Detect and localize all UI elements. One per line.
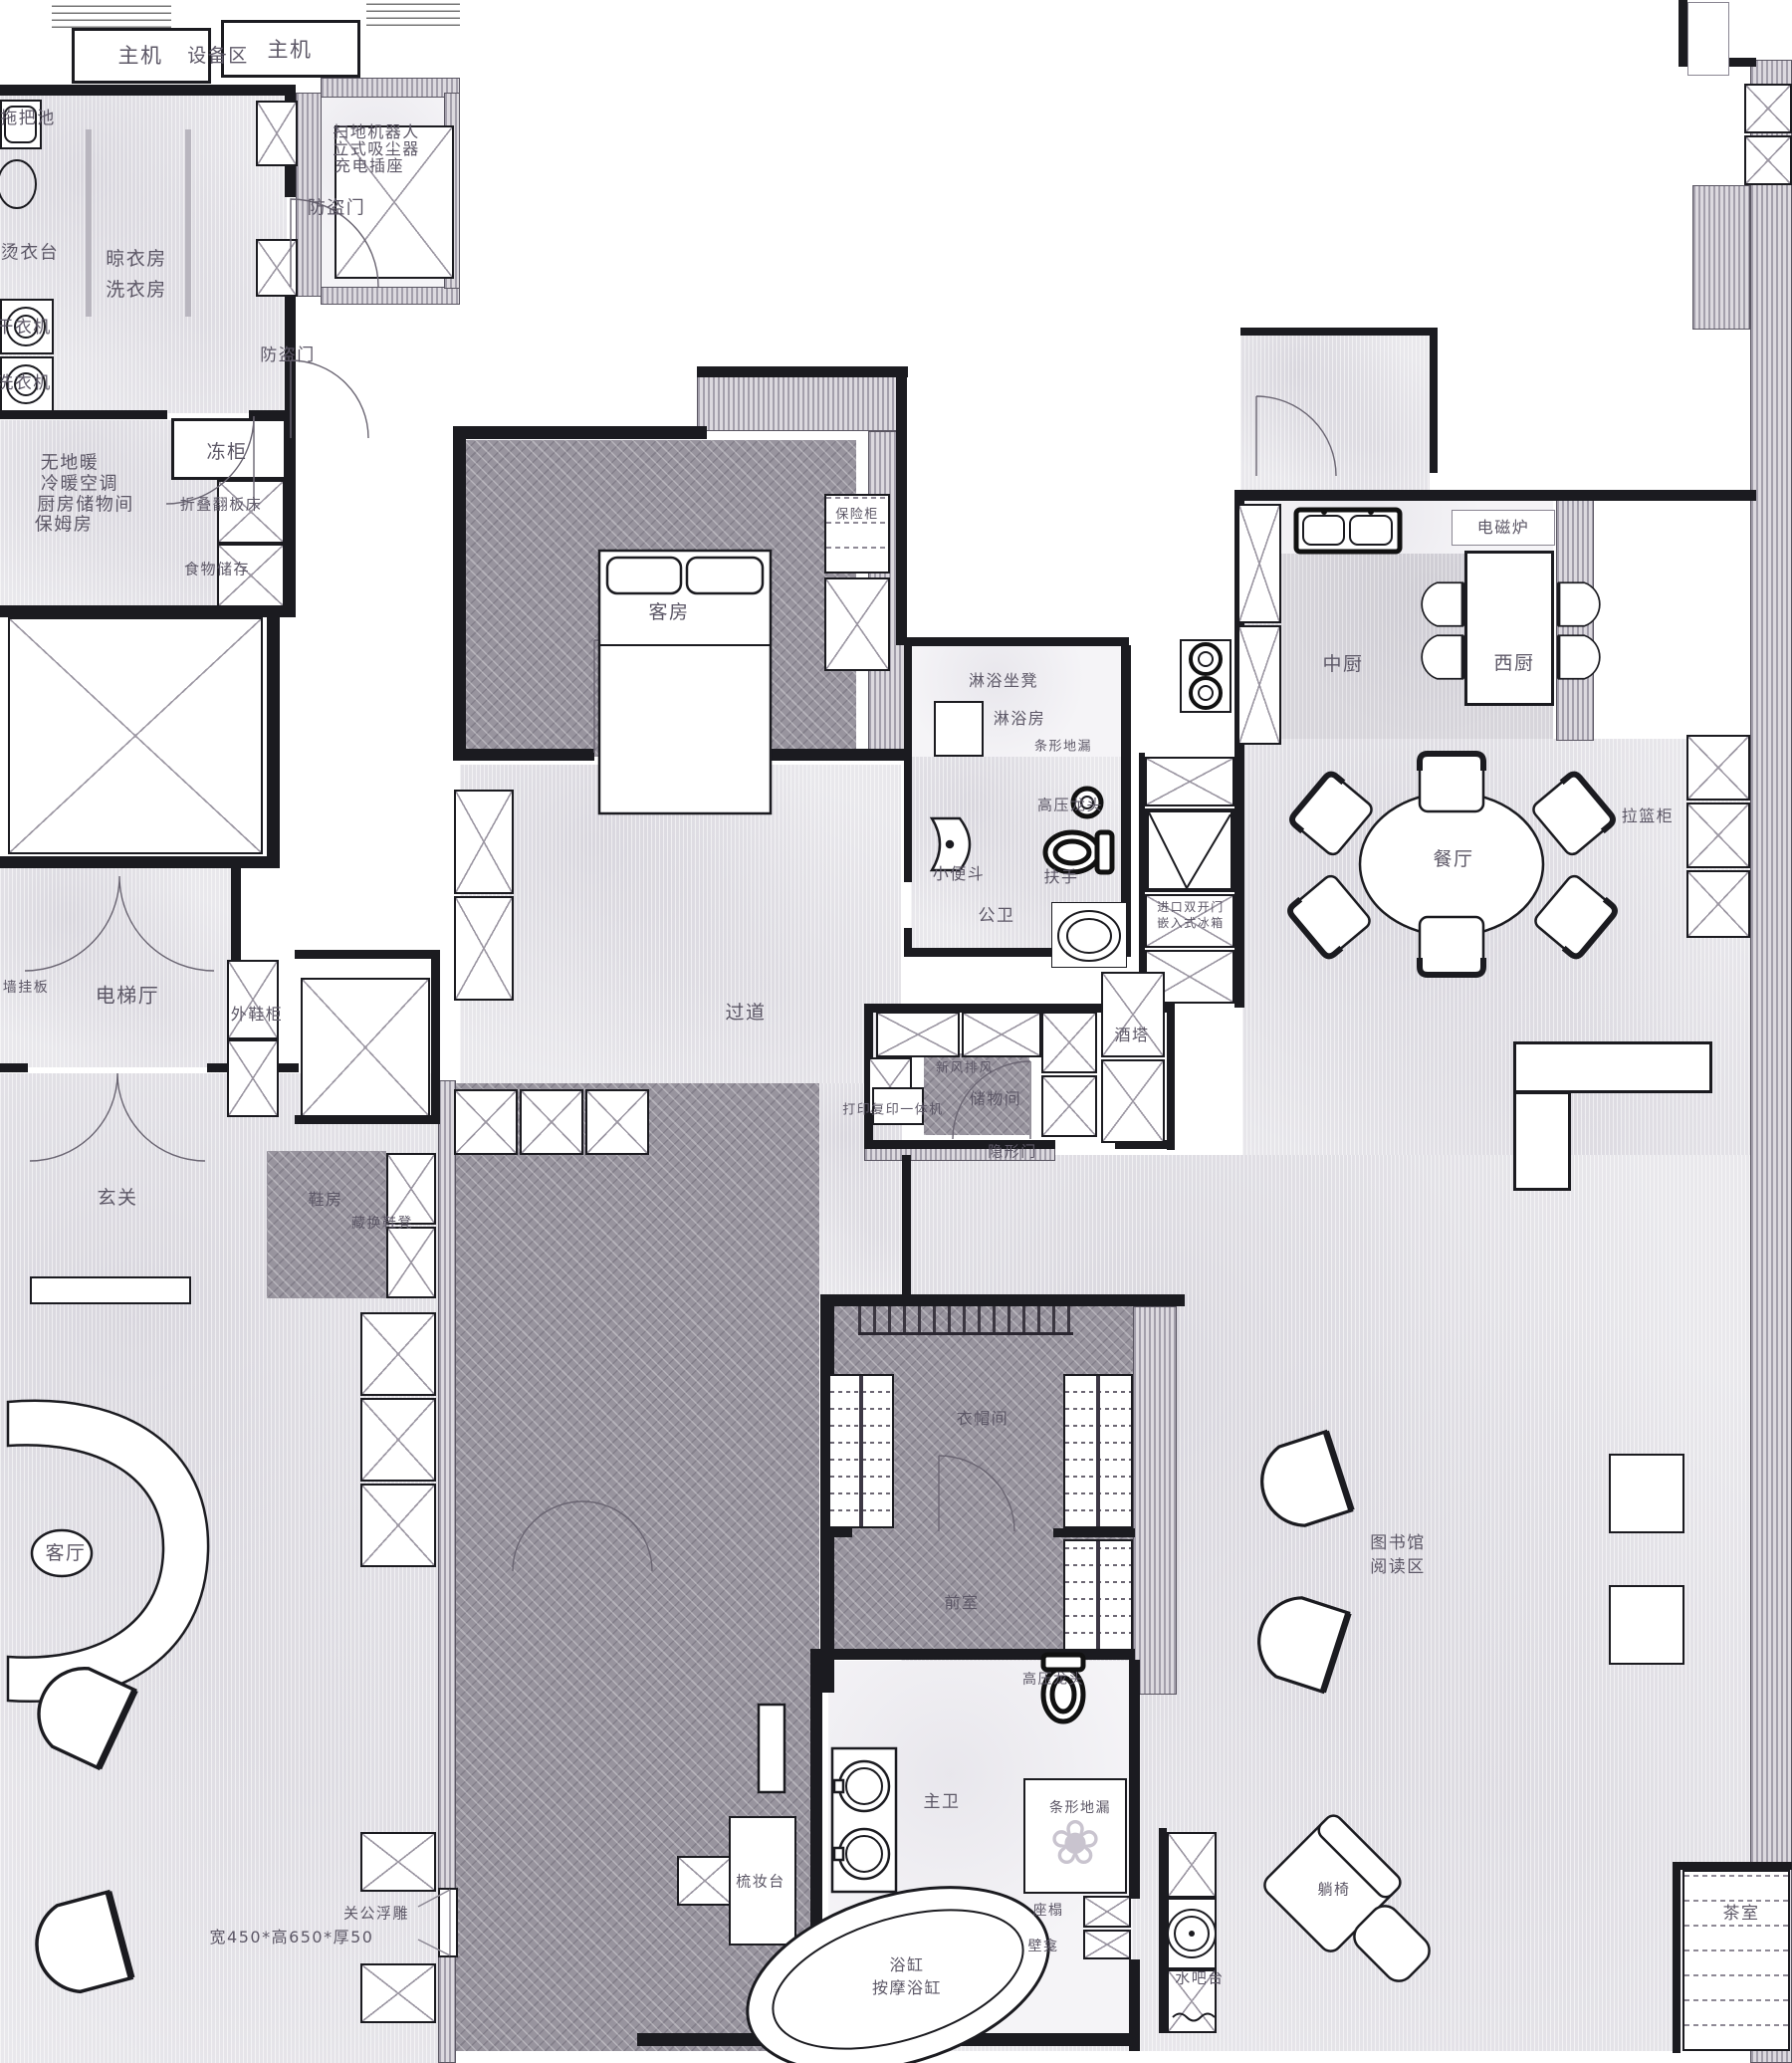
dining-chair (1532, 873, 1618, 959)
label-lounge-chair: 躺椅 (1317, 1881, 1350, 1898)
door-arc-bedroom (513, 1501, 652, 1571)
door-arcs (25, 199, 1336, 1571)
dining-chair (1289, 772, 1375, 857)
label-relief-size: 宽450*高650*厚50 (210, 1929, 374, 1947)
label-pullout-cabinet: 拉篮柜 (1622, 807, 1675, 825)
island-chair (1422, 635, 1462, 679)
label-master-bath: 主卫 (924, 1793, 961, 1813)
label-living-room: 客厅 (45, 1543, 86, 1565)
library-chair (1251, 1432, 1352, 1534)
relief-leader-lines (418, 1890, 450, 1955)
master-toilet (1043, 1655, 1083, 1721)
label-equipment-area: 设备区 (187, 46, 249, 68)
label-guangong-relief: 关公浮雕 (343, 1905, 409, 1922)
master-vanity (832, 1748, 896, 1892)
label-reading-area: 阅读区 (1370, 1558, 1426, 1578)
label-guest-bath: 公卫 (979, 907, 1015, 927)
label-drying-room: 晾衣房 (106, 249, 167, 271)
urinal-icon (932, 818, 970, 870)
guest-bed (599, 551, 771, 813)
fridge-door-lines (1149, 812, 1231, 888)
label-wall-panel: 墙挂板 (3, 980, 50, 996)
kitchen-sink (1296, 509, 1400, 552)
vanity-mirror (759, 1705, 784, 1792)
label-foyer: 玄关 (97, 1188, 137, 1210)
label-folding-bed: 折叠翻板床 (180, 496, 263, 513)
stove-burners (1191, 644, 1221, 708)
library-chair (1248, 1589, 1349, 1692)
label-printer: 打印复印一体机 (842, 1104, 944, 1119)
label-hidden-door: 隐形门 (988, 1143, 1037, 1160)
floor-plan-canvas: ❀ 主机设备区主机拖把池烫衣台晾衣房洗衣房防盗门扫地机器人立式吸尘器充电插座干衣… (0, 0, 1792, 2063)
label-water-bar: 水吧台 (1175, 1969, 1225, 1986)
hanging-rod (185, 129, 191, 317)
label-dryer: 干衣机 (0, 319, 52, 339)
label-massage-tub: 按摩浴缸 (872, 1979, 942, 1997)
label-western-kitchen: 西厨 (1493, 653, 1534, 675)
label-kitchen-storage: 厨房储物间 (37, 496, 134, 517)
label-wine-tower: 酒塔 (1114, 1027, 1149, 1044)
door-arc-cloakroom (939, 1456, 1014, 1531)
label-bathtub: 浴缸 (889, 1956, 924, 1974)
label-host-machine-1: 主机 (118, 44, 163, 68)
label-hp-faucet-2: 高压龙头 (1022, 1672, 1084, 1688)
label-shower-seat: 淋浴坐凳 (969, 672, 1038, 690)
drain-flower-icon: ❀ (1049, 1806, 1101, 1879)
island-chair (1422, 582, 1462, 626)
hanging-rod (86, 129, 92, 317)
label-hidden-shoe-bench: 藏换鞋凳 (351, 1216, 413, 1232)
label-storage-room: 储物间 (970, 1090, 1022, 1108)
label-nanny-room: 保姆房 (35, 516, 94, 537)
label-dressing-table: 梳妆台 (736, 1873, 785, 1890)
label-library: 图书馆 (1370, 1534, 1426, 1554)
label-host-machine-2: 主机 (268, 38, 313, 62)
label-shoe-room: 鞋房 (308, 1191, 342, 1209)
door-arc-foyer (30, 1073, 205, 1161)
label-niche: 壁龛 (1028, 1939, 1059, 1954)
label-chinese-kitchen: 中厨 (1322, 654, 1363, 676)
label-washer: 洗衣机 (0, 374, 52, 394)
island-chair (1559, 635, 1600, 679)
water-bar-sink-icon (1168, 1910, 1216, 2021)
label-linear-drain-2: 条形地漏 (1049, 1800, 1111, 1816)
dining-chair (1420, 754, 1483, 811)
label-security-door-1: 防盗门 (308, 199, 366, 220)
label-corridor: 过道 (725, 1003, 766, 1025)
label-freezer: 冻柜 (206, 442, 247, 464)
label-outer-shoe-cabinet: 外鞋柜 (231, 1006, 284, 1024)
label-fridge-line-1: 进口双开门 (1157, 901, 1225, 915)
label-mop-pool: 拖把池 (0, 110, 56, 129)
label-linear-drain-1: 条形地漏 (1034, 741, 1092, 756)
label-laundry-room: 洗衣房 (106, 280, 167, 302)
furniture-layer: ❀ (0, 0, 1792, 2063)
dining-chair (1287, 873, 1373, 959)
door-arc-vestibule (1256, 396, 1336, 476)
label-safe-box: 保险柜 (835, 509, 879, 524)
label-cloakroom: 衣帽间 (957, 1410, 1009, 1428)
label-handrail: 扶手 (1043, 868, 1078, 886)
label-charging-socket: 充电插座 (335, 157, 404, 175)
door-arc-elevator-hall (25, 876, 214, 971)
label-anteroom: 前室 (944, 1594, 979, 1612)
label-bench-seat: 座榻 (1033, 1903, 1064, 1919)
label-food-storage: 食物储存 (184, 561, 250, 577)
label-security-door-2: 防盗门 (260, 346, 316, 366)
island-chair (1559, 582, 1600, 626)
dining-chair (1530, 772, 1616, 857)
label-dining-room: 餐厅 (1433, 849, 1473, 871)
label-no-floor-heating: 无地暖 (41, 454, 100, 475)
label-shower-room: 淋浴房 (994, 710, 1046, 728)
label-tea-room: 茶室 (1723, 1905, 1760, 1925)
label-fridge-line-2: 嵌入式冰箱 (1157, 917, 1225, 931)
door-arc-security-2 (291, 360, 368, 438)
label-elevator-hall: 电梯厅 (96, 985, 160, 1008)
dining-chair (1420, 917, 1483, 975)
label-hp-faucet-1: 高压龙头 (1037, 797, 1103, 813)
label-hvac: 冷暖空调 (41, 475, 118, 496)
label-urinal: 小便斗 (933, 865, 986, 883)
label-guest-room: 客房 (648, 602, 689, 624)
label-ironing-table: 烫衣台 (1, 244, 60, 265)
armchair (27, 1892, 131, 1999)
label-fresh-air: 新风排风 (936, 1062, 994, 1077)
label-induction-cooker: 电磁炉 (1477, 519, 1530, 537)
laundry-sink-icon (0, 160, 36, 208)
